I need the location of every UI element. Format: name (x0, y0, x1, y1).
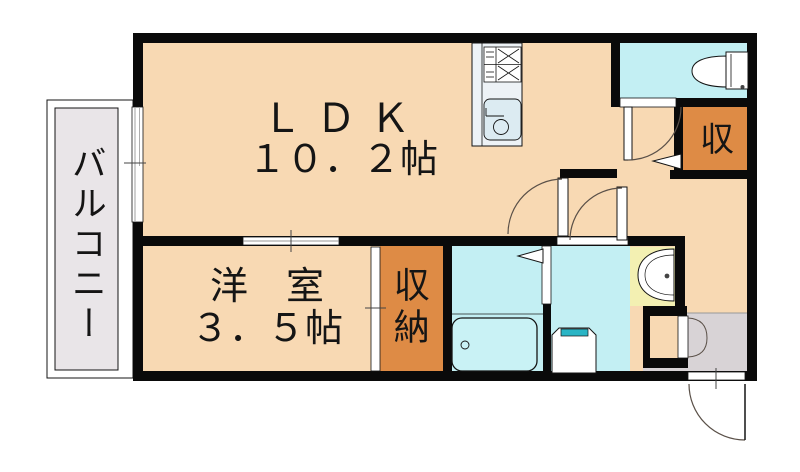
storage-small-label: 収 (699, 123, 735, 159)
floorplan-drawing (0, 0, 800, 472)
stove-icon (484, 47, 521, 82)
toilet-door-opening (620, 98, 676, 107)
ldk-room-size: １０．２帖 (233, 141, 453, 181)
washing-machine-pan-icon (552, 328, 596, 373)
room-entrance-floor (685, 313, 747, 371)
western-room-label: 洋 室 (156, 268, 378, 308)
floorplan-canvas: ＬＤＫ １０．２帖 洋 室 ３．５帖 収納 収 バルコニー (0, 0, 800, 472)
bathtub-icon (452, 318, 537, 371)
balcony-label: バルコニー (67, 145, 104, 345)
shoe-closet-door-panel (678, 316, 688, 358)
closet-sliding-door (371, 247, 380, 371)
washroom-door-leaf (617, 187, 627, 240)
ldk-door-leaf (558, 178, 568, 236)
toilet-door-leaf (624, 107, 632, 160)
ldk-room-label: ＬＤＫ (233, 98, 453, 140)
entrance-door-arc (689, 384, 745, 440)
western-room-size: ３．５帖 (156, 310, 378, 350)
balcony-window (132, 107, 143, 222)
sink-icon (484, 99, 521, 140)
closet-label: 収納 (390, 266, 428, 350)
kitchen-counter-icon (472, 43, 522, 146)
